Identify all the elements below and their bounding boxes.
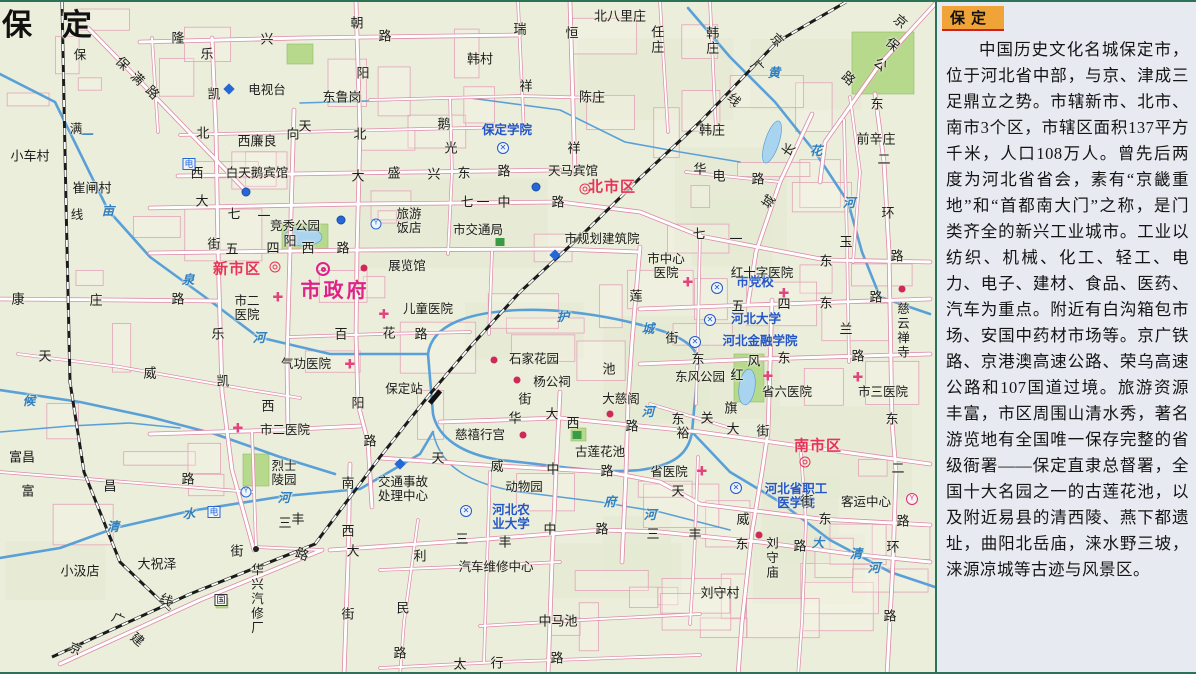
village-label: 北八里庄 — [594, 10, 646, 25]
road-name-char: 电 — [712, 170, 725, 185]
river-label: 河 — [843, 196, 856, 210]
road-name-char: 兰 — [839, 323, 852, 338]
village-label: 小汲店 — [60, 565, 99, 580]
poi-label: 古莲花池 — [575, 445, 625, 459]
road-name-char: 阳 — [283, 235, 296, 250]
road-name-char: 保 — [112, 54, 131, 73]
school-label: 河北农业大学 — [492, 503, 530, 531]
road-name-char: 一 — [257, 210, 270, 225]
road-name-char: 路 — [838, 69, 857, 89]
hospital-label: 气功医院 — [281, 357, 331, 371]
road-name-char: 威 — [736, 513, 749, 528]
road-name-char: 东 — [777, 352, 790, 367]
poi-label: 电视台 — [248, 83, 286, 97]
map-labels: 保定新市区北市区南市区市政府保定学院河北大学河北金融学院河北农业大学河北省职工医… — [0, 2, 935, 674]
road-name-char: 阳 — [356, 67, 369, 82]
district-label: 北市区 — [588, 180, 636, 197]
hospital-label: 市二医院 — [234, 294, 259, 322]
road-name-char: 风 — [747, 355, 760, 370]
road-name-char: 路 — [550, 652, 563, 667]
school-icon: ✕ — [704, 314, 716, 326]
hospital-icon: ✚ — [779, 287, 790, 300]
village-label: 西廉良 — [237, 135, 276, 150]
road-name-char: 丰 — [498, 536, 511, 551]
road-name-char: 乐 — [211, 328, 224, 343]
road-name-char: 玉 — [839, 236, 852, 251]
road-name-char: 中 — [546, 463, 559, 478]
road-name-char: 关 — [700, 412, 713, 427]
road-name-char: 太 — [453, 658, 466, 673]
road-name-char: 南 — [341, 477, 354, 492]
railway-label: 线 — [157, 591, 174, 609]
poi-label: 展览馆 — [388, 259, 426, 273]
road-name-char: 兴 — [427, 168, 440, 183]
road-name-char: 路 — [600, 465, 613, 480]
hospital-icon: ✚ — [379, 308, 390, 321]
road-name-char: 路 — [142, 83, 161, 102]
school-icon: ✕ — [689, 336, 701, 348]
road-name-char: 东 — [457, 167, 470, 182]
road-name-char: 东 — [819, 297, 832, 312]
river-label: 黄 — [768, 66, 781, 80]
poi-label: 竞秀公园 — [270, 219, 320, 233]
bus-station-icon: Y — [371, 219, 382, 230]
road-name-char: 二 — [891, 462, 904, 477]
poi-label: 保定站 — [385, 382, 423, 396]
road-name-char: 路 — [363, 435, 376, 450]
road-name-char: 恒 — [565, 27, 578, 42]
road-name-char: 二 — [877, 153, 890, 168]
road-name-char: 路 — [751, 173, 764, 188]
landmark-diamond-icon — [223, 83, 234, 94]
road-name-char: 一 — [476, 196, 489, 211]
road-name-char: 西 — [261, 400, 274, 415]
road-name-char: 大 — [545, 408, 558, 423]
national-road-shield-icon: 国 — [214, 594, 227, 606]
road-name-char: 瑞 — [513, 23, 526, 38]
road-name-char: 东 — [870, 98, 883, 113]
hospital-label: 市三医院 — [858, 385, 908, 399]
road-name-char: 阳 — [351, 397, 364, 412]
poi-label: 杨公祠 — [533, 375, 571, 389]
road-name-char: 鹅 — [437, 118, 450, 133]
hospital-icon: ✚ — [763, 370, 774, 383]
poi-label: 东风公园 — [675, 370, 725, 384]
road-name-char: 四 — [266, 242, 279, 257]
road-name-char: 路 — [378, 30, 391, 45]
road-name-char: 东 — [819, 255, 832, 270]
road-name-char: 北 — [196, 127, 209, 142]
road-name-char: 七 — [227, 208, 240, 223]
road-name-char: 裕 — [676, 427, 689, 442]
village-label: 任庄 — [649, 25, 664, 55]
road-name-char: 建 — [127, 630, 146, 650]
school-icon: ✕ — [730, 482, 742, 494]
poi-dot-icon — [253, 546, 259, 552]
river-label: 清 — [850, 547, 863, 561]
road-name-char: 城 — [759, 192, 778, 211]
road-name-char: 街 — [207, 238, 220, 253]
road-name-char: 大 — [346, 545, 359, 560]
poi-label: 市交通局 — [453, 223, 503, 237]
village-label: 东鲁岗 — [322, 91, 361, 106]
road-name-char: 路 — [293, 546, 310, 564]
road-name-char: 七 — [460, 196, 473, 211]
road-name-char: 兴 — [260, 33, 273, 48]
bus-station-icon: Y — [906, 493, 918, 505]
river-label: 水 — [183, 507, 196, 521]
village-label: 小车村 — [10, 150, 49, 165]
poi-label: 华兴汽修厂 — [249, 563, 263, 636]
poi-label: 刘守庙 — [764, 536, 778, 580]
hotel-icon — [532, 183, 541, 192]
road-name-char: 大 — [195, 195, 208, 210]
river-label: 护 — [557, 310, 570, 324]
hospital-label: 省六医院 — [762, 385, 812, 399]
road-name-char: 中 — [543, 523, 556, 538]
road-name-char: 光 — [444, 142, 457, 157]
road-name-char: 池 — [602, 363, 615, 378]
district-icon — [580, 184, 591, 195]
map-title: 保定 — [2, 9, 122, 43]
road-name-char: 路 — [551, 196, 564, 211]
road-name-char: 路 — [393, 647, 406, 662]
poi-label: 旅游饭店 — [396, 207, 421, 235]
road-name-char: 公 — [870, 55, 889, 75]
building-square-icon — [573, 431, 582, 439]
river-label: 候 — [23, 394, 36, 408]
road-name-char: 莲 — [629, 290, 642, 305]
road-name-char: 路 — [595, 523, 608, 538]
city-government-label: 市政府 — [301, 280, 370, 302]
poi-dot-icon — [520, 432, 527, 439]
road-name-char: 大 — [351, 170, 364, 185]
telecom-icon: 电 — [182, 158, 195, 170]
village-label: 刘守村 — [700, 587, 739, 602]
road-name-char: 中 — [497, 196, 510, 211]
road-name-char: 东 — [735, 538, 748, 553]
road-name-char: 花 — [382, 327, 395, 342]
road-name-char: 长 — [779, 140, 798, 159]
village-label: 崔闸村 — [72, 182, 111, 197]
road-name-char: 天 — [431, 452, 444, 467]
hospital-icon: ✚ — [273, 291, 284, 304]
road-name-char: 丰 — [291, 513, 304, 528]
road-name-char: 路 — [497, 165, 510, 180]
hospital-label: 市二医院 — [260, 423, 310, 437]
poi-label: 大慈阁 — [602, 392, 640, 406]
road-name-char: 东 — [885, 413, 898, 428]
road-name-char: 祥 — [567, 142, 580, 157]
road-name-char: 三 — [646, 528, 659, 543]
road-name-char: 天 — [38, 350, 51, 365]
road-name-char: 西 — [566, 417, 579, 432]
road-name-char: 街 — [800, 495, 813, 510]
railway-label: 广 — [109, 610, 126, 628]
road-name-char: 京 — [890, 12, 909, 32]
river-label: 河 — [642, 405, 655, 419]
poi-dot-icon — [491, 357, 498, 364]
road-name-char: 三 — [278, 517, 291, 532]
road-name-char: 路 — [869, 291, 882, 306]
village-label: 前辛庄 — [856, 133, 895, 148]
road-name-char: 威 — [143, 367, 156, 382]
road-name-char: 红 — [730, 369, 743, 384]
railway-label: 京 — [66, 640, 83, 658]
road-name-char: 乐 — [200, 48, 213, 63]
road-name-char: 西 — [301, 242, 314, 257]
poi-dot-icon — [361, 265, 368, 272]
poi-label: 汽车维修中心 — [458, 560, 533, 574]
road-name-char: 旗 — [724, 402, 737, 417]
river-label: 大 — [812, 536, 825, 550]
school-icon: ✕ — [711, 282, 723, 294]
panel-body-text: 中国历史文化名城保定市，位于河北省中部，与京、津成三足鼎立之势。市辖新市、北市、… — [946, 37, 1189, 583]
road-name-char: 天 — [298, 120, 311, 135]
road-name-char: 街 — [756, 425, 769, 440]
road-name-char: 街 — [518, 393, 531, 408]
road-name-char: 丰 — [688, 528, 701, 543]
hospital-label: 市中心医院 — [647, 252, 685, 280]
road-name-char: 一 — [729, 233, 742, 248]
river-label: 亩 — [102, 204, 115, 218]
poi-label: 石家花园 — [509, 352, 559, 366]
road-name-char: 街 — [230, 545, 243, 560]
railway-station-icon — [428, 389, 442, 404]
panel-title: 保定 — [942, 6, 1004, 31]
river-label: 河 — [253, 331, 266, 345]
poi-dot-icon — [899, 286, 906, 293]
poi-label: 白天鹅宾馆 — [226, 166, 289, 180]
road-name-char: 保 — [882, 35, 901, 55]
river-label: 泉 — [182, 273, 195, 287]
road-name-char: 街 — [665, 332, 678, 347]
village-label: 韩村 — [467, 53, 493, 68]
landmark-diamond-icon — [549, 249, 560, 260]
landmark-diamond-icon — [394, 458, 405, 469]
road-name-char: 华 — [508, 412, 521, 427]
road-name-char: 威 — [490, 460, 503, 475]
road-name-char: 天 — [671, 485, 684, 500]
school-label: 河北省职工医学院 — [765, 482, 828, 510]
road-name-char: 路 — [851, 350, 864, 365]
school-icon: ✕ — [460, 505, 472, 517]
road-name-char: 朝 — [350, 17, 363, 32]
road-name-char: 七 — [692, 228, 705, 243]
road-name-char: 街 — [341, 608, 354, 623]
village-label: 陈庄 — [579, 91, 605, 106]
road-name-char: 凯 — [216, 375, 229, 390]
village-label: 韩庄 — [699, 124, 725, 139]
hotel-icon — [337, 216, 346, 225]
poi-label: 动物园 — [505, 480, 543, 494]
road-name-char: 三 — [455, 533, 468, 548]
road-name-char: 凯 — [207, 88, 220, 103]
road-name-char: 祥 — [519, 80, 532, 95]
hospital-icon: ✚ — [345, 358, 356, 371]
road-name-char: 西 — [341, 525, 354, 540]
road-name-char: 路 — [181, 473, 194, 488]
road-name-char: 隆 — [171, 32, 184, 47]
road-name-char: 路 — [171, 293, 184, 308]
railway-label: 线 — [725, 91, 744, 110]
river-label: 河 — [278, 491, 291, 505]
hospital-icon: ✚ — [683, 276, 694, 289]
river-label: 河 — [868, 561, 881, 575]
hospital-icon: ✚ — [233, 422, 244, 435]
atlas-page: 保定新市区北市区南市区市政府保定学院河北大学河北金融学院河北农业大学河北省职工医… — [0, 0, 1196, 674]
road-name-char: 五 — [225, 243, 238, 258]
railway-label: 京 — [768, 31, 787, 50]
road-name-char: 五 — [731, 300, 744, 315]
river-label: 清 — [107, 520, 120, 534]
road-name-char: 路 — [625, 420, 638, 435]
road-name-char: 路 — [793, 540, 806, 555]
road-name-char: 环 — [886, 541, 899, 556]
bus-station-icon: Y — [241, 487, 252, 498]
road-name-char: 行 — [490, 657, 503, 672]
road-name-char: 百 — [334, 328, 347, 343]
road-name-char: 东 — [691, 353, 704, 368]
river-label: 府 — [604, 495, 617, 509]
poi-label: 烈士陵园 — [271, 459, 296, 487]
road-name-char: 大 — [726, 423, 739, 438]
poi-dot-icon — [514, 377, 521, 384]
poi-label: 市规划建筑院 — [564, 232, 639, 246]
poi-label: 慈禧行宫 — [455, 428, 505, 442]
government-icon — [316, 262, 330, 276]
railway-label: 广 — [748, 58, 767, 77]
poi-label: 交通事故处理中心 — [378, 475, 428, 503]
river-label: 河 — [644, 508, 657, 522]
river-label: 花 — [810, 144, 823, 158]
district-label: 南市区 — [794, 439, 842, 456]
road-name-char: 北 — [353, 128, 366, 143]
poi-label: 客运中心 — [841, 495, 891, 509]
village-label: 中马池 — [538, 615, 577, 630]
poi-dot-icon — [607, 411, 614, 418]
road-name-char: 路 — [890, 250, 903, 265]
road-name-char: 满 — [127, 69, 146, 88]
road-name-char: 民 — [396, 602, 409, 617]
city-map: 保定新市区北市区南市区市政府保定学院河北大学河北金融学院河北农业大学河北省职工医… — [0, 2, 935, 674]
hospital-label: 红十字医院 — [731, 266, 794, 280]
road-name-char: 路 — [896, 515, 909, 530]
railway-label: 线 — [71, 208, 84, 222]
hotel-icon — [242, 188, 251, 197]
district-label: 新市区 — [213, 262, 261, 279]
telecom-icon: 电 — [207, 506, 220, 518]
road-name-char: 东 — [818, 513, 831, 528]
road-name-char: 昌 — [103, 480, 116, 495]
building-square-icon — [496, 238, 505, 246]
road-name-char: 路 — [336, 242, 349, 257]
district-icon — [270, 262, 281, 273]
hospital-label: 省医院 — [650, 465, 688, 479]
poi-label: 天马宾馆 — [548, 164, 598, 178]
district-icon — [800, 457, 811, 468]
school-icon: ✕ — [497, 142, 509, 154]
hospital-label: 儿童医院 — [403, 302, 453, 316]
school-label: 河北金融学院 — [722, 334, 797, 348]
hospital-icon: ✚ — [697, 465, 708, 478]
road-name-char: 康 — [11, 293, 24, 308]
poi-dot-icon — [756, 532, 763, 539]
road-name-char: 庄 — [89, 294, 102, 309]
road-name-char: 利 — [413, 550, 426, 565]
village-label: 大祝泽 — [137, 558, 176, 573]
road-name-char: 环 — [881, 207, 894, 222]
school-label: 保定学院 — [482, 123, 532, 137]
road-name-char: 盛 — [387, 167, 400, 182]
info-panel: 保定 中国历史文化名城保定市，位于河北省中部，与京、津成三足鼎立之势。市辖新市、… — [935, 2, 1196, 674]
poi-label: 慈云禅寺 — [895, 302, 909, 360]
road-name-char: 路 — [414, 328, 427, 343]
village-label: 韩庄 — [704, 26, 719, 56]
village-label: 富昌 — [9, 451, 35, 466]
road-name-char: 华 — [693, 163, 706, 178]
road-name-char: 路 — [883, 610, 896, 625]
road-name-char: 富 — [21, 485, 34, 500]
river-label: 城 — [642, 322, 655, 336]
railway-label: 保 — [74, 48, 87, 62]
hospital-icon: ✚ — [853, 371, 864, 384]
railway-label: 满 — [70, 122, 83, 136]
